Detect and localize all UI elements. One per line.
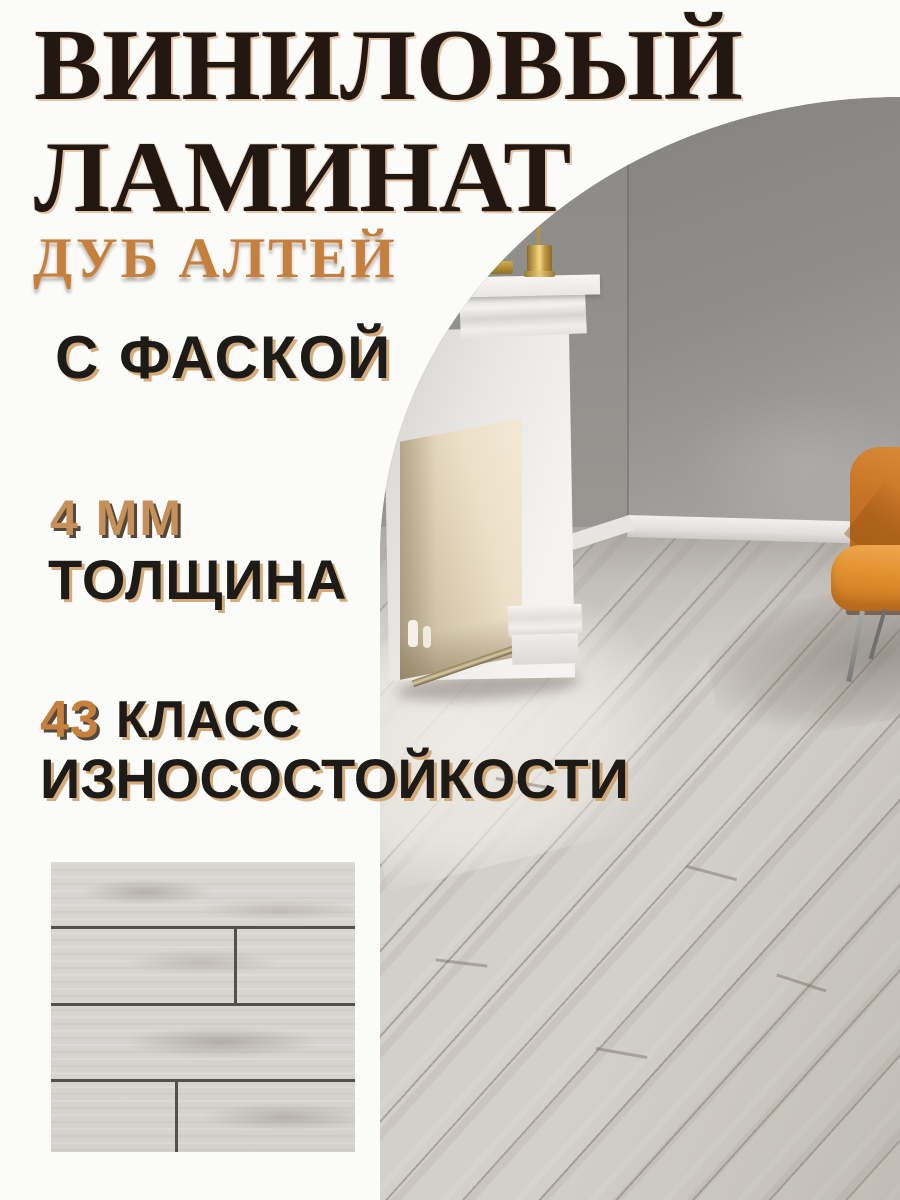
plank-seam-horizontal bbox=[51, 926, 355, 929]
orange-chair-seat bbox=[831, 545, 900, 611]
fireplace-firebox bbox=[400, 418, 522, 680]
fireplace-base-molding bbox=[507, 604, 582, 638]
decor-name-subtitle: ДУБ АЛТЕЙ bbox=[33, 226, 398, 291]
firebox-log bbox=[423, 626, 431, 648]
feature-wear-class-line2: ИЗНОСОСТОЙКОСТИ bbox=[40, 746, 629, 811]
fireplace-base-block bbox=[512, 633, 579, 665]
wear-class-word: КЛАСС bbox=[116, 691, 301, 749]
fireplace-crown-molding bbox=[459, 291, 587, 338]
plank-seam-horizontal bbox=[51, 1003, 355, 1006]
feature-thickness-label: ТОЛЩИНА bbox=[48, 547, 347, 612]
feature-chamfer: С ФАСКОЙ bbox=[55, 323, 392, 392]
mantel-brass-trinket bbox=[487, 261, 513, 274]
wear-class-number: 43 bbox=[40, 691, 100, 749]
brass-candlestick-holder bbox=[527, 245, 552, 273]
room-photo bbox=[380, 97, 900, 1200]
firebox-log bbox=[408, 620, 418, 647]
plank-seam-vertical bbox=[234, 926, 237, 1006]
brass-candlestick-base bbox=[524, 271, 555, 277]
feature-thickness-value: 4 ММ bbox=[50, 489, 183, 547]
plank-seam-horizontal bbox=[51, 1079, 355, 1082]
brass-candlestick-rod bbox=[537, 218, 540, 247]
plank-seam-vertical bbox=[175, 1079, 178, 1152]
feature-wear-class-line1: 43КЛАСС bbox=[40, 690, 300, 750]
fireplace-mantel-shelf bbox=[448, 274, 600, 297]
laminate-plank-swatch bbox=[51, 862, 355, 1152]
room-wall-corner-line bbox=[627, 97, 629, 519]
